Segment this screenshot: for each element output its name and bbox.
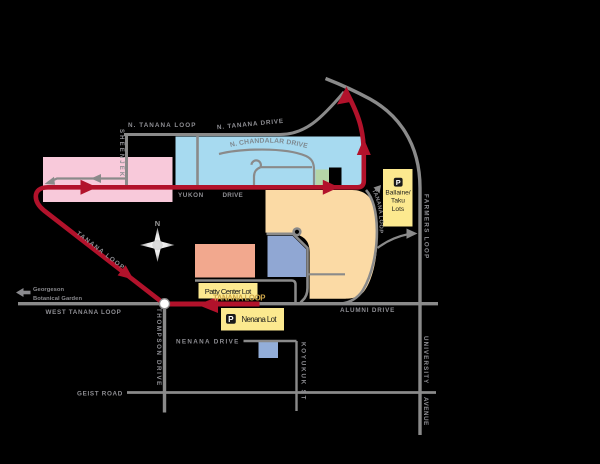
svg-text:NENANA DRIVE: NENANA DRIVE [176, 339, 239, 346]
svg-text:N: N [155, 219, 160, 228]
svg-text:GEIST ROAD: GEIST ROAD [77, 391, 123, 398]
svg-text:Ballaine/: Ballaine/ [385, 190, 410, 197]
svg-text:TANANA LOOP: TANANA LOOP [213, 294, 267, 303]
svg-text:FARMERS LOOP: FARMERS LOOP [423, 194, 430, 259]
svg-text:THOMPSON DRIVE: THOMPSON DRIVE [155, 308, 162, 386]
svg-text:YUKON: YUKON [178, 192, 204, 199]
svg-text:WEST TANANA LOOP: WEST TANANA LOOP [46, 309, 122, 316]
svg-text:Georgeson: Georgeson [33, 287, 64, 293]
svg-text:SHEENJEK: SHEENJEK [118, 129, 124, 177]
svg-text:UNIVERSITY: UNIVERSITY [422, 336, 429, 384]
svg-text:AVENUE: AVENUE [422, 397, 429, 426]
svg-text:Botanical Garden: Botanical Garden [33, 296, 82, 302]
svg-text:P: P [228, 315, 234, 324]
svg-text:ALUMNI DRIVE: ALUMNI DRIVE [340, 307, 395, 314]
svg-text:Taku: Taku [391, 198, 405, 205]
svg-text:Nenana Lot: Nenana Lot [242, 315, 278, 324]
svg-text:DRIVE: DRIVE [223, 192, 244, 199]
svg-text:P: P [396, 178, 401, 187]
svg-text:Lots: Lots [392, 206, 405, 213]
svg-text:KOYUKUK ST: KOYUKUK ST [300, 342, 307, 400]
svg-text:N. TANANA LOOP: N. TANANA LOOP [128, 122, 196, 129]
